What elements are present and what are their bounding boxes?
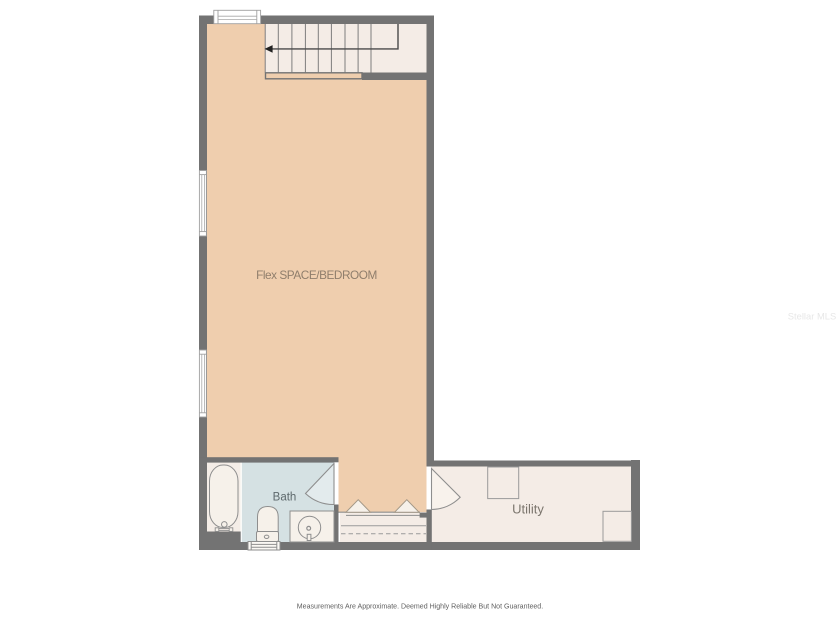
svg-text:Measurements Are Approximate.: Measurements Are Approximate. Deemed Hig… <box>297 604 543 611</box>
svg-text:Bath: Bath <box>273 492 297 504</box>
svg-text:Utility: Utility <box>512 502 544 517</box>
svg-text:Stellar MLS: Stellar MLS <box>788 311 836 322</box>
svg-text:Flex SPACE/BEDROOM: Flex SPACE/BEDROOM <box>256 268 377 282</box>
